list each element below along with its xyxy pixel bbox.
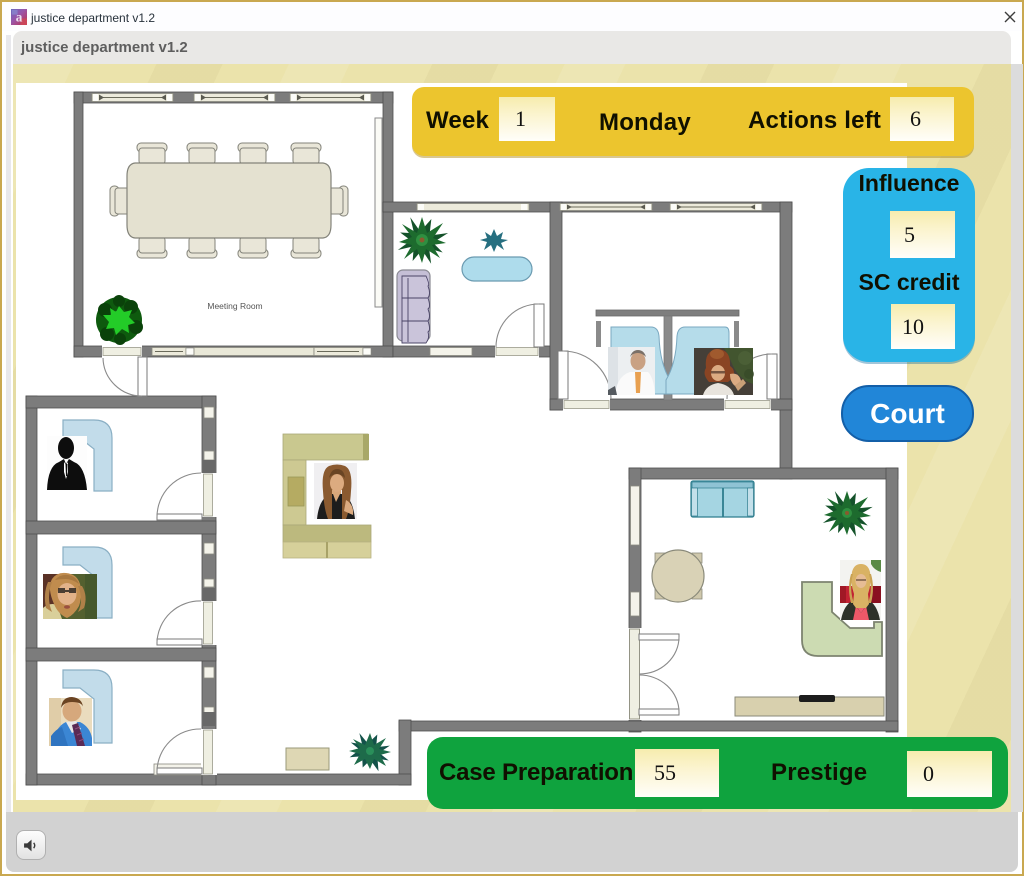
svg-text:Meeting Room: Meeting Room: [207, 301, 262, 311]
